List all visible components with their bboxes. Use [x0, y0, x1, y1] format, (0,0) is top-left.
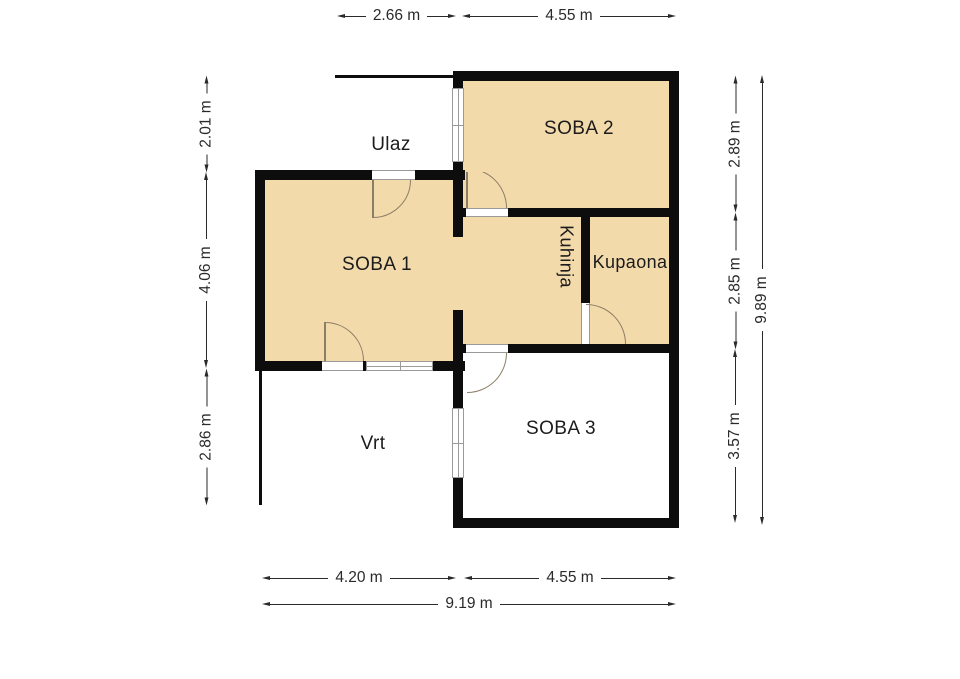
window-ulaz-soba2 — [452, 88, 464, 162]
dim-bottom-total: 9.19 m — [262, 596, 676, 612]
dim-top-1-label: 2.66 m — [366, 8, 427, 24]
line-vrt-left — [259, 371, 262, 505]
wall-right — [669, 71, 679, 528]
wall-soba1-left — [255, 170, 265, 371]
dim-right-2-label: 2.85 m — [728, 250, 744, 311]
door-arc-soba1-vrt — [325, 322, 364, 361]
area-label-ulaz: Ulaz — [331, 134, 451, 156]
room-label-soba-1: SOBA 1 — [307, 254, 447, 276]
room-label-soba-3: SOBA 3 — [491, 418, 631, 440]
wall-central-a — [453, 71, 463, 88]
dim-right-total: 9.89 m — [754, 75, 770, 525]
dim-left-2: 4.06 m — [198, 172, 214, 368]
dim-left-3: 2.86 m — [199, 369, 215, 506]
floor-plan: SOBA 1 SOBA 2 SOBA 3 Kuhinja Kupaona Ula… — [0, 0, 960, 679]
wall-kuhinja-bottom — [508, 344, 679, 353]
door-arc-kuhinja-soba3 — [467, 353, 507, 393]
dim-top-2: 4.55 m — [462, 8, 676, 24]
door-leaf-soba1-vrt — [324, 322, 326, 361]
window-soba1-vrt — [366, 361, 433, 371]
door-opening-ulaz-soba1 — [372, 170, 415, 180]
door-leaf-ulaz-soba1 — [372, 180, 374, 218]
door-arc-kupaona — [586, 304, 626, 344]
wall-central-c — [453, 310, 463, 408]
wall-soba1-top-left — [255, 170, 372, 180]
dim-top-2-label: 4.55 m — [538, 8, 599, 24]
area-label-vrt: Vrt — [313, 433, 433, 455]
wall-soba2-top — [453, 71, 679, 81]
door-opening-kuhinja-soba3 — [466, 344, 508, 353]
door-opening-soba2-kuhinja — [466, 208, 508, 217]
dim-bottom-2-label: 4.55 m — [539, 570, 600, 586]
dim-bottom-2: 4.55 m — [464, 570, 676, 586]
wall-central-d — [453, 478, 463, 528]
door-arc-ulaz-soba1 — [373, 180, 411, 218]
dim-right-1-label: 2.89 m — [728, 113, 744, 174]
dim-bottom-total-label: 9.19 m — [438, 596, 499, 612]
dim-bottom-1-label: 4.20 m — [328, 570, 389, 586]
dim-right-total-label: 9.89 m — [754, 269, 770, 330]
wall-soba1-bottom-left — [255, 361, 322, 371]
dim-top-1: 2.66 m — [337, 8, 456, 24]
wall-soba3-bottom — [453, 518, 679, 528]
line-ulaz-top — [335, 75, 453, 78]
dim-right-3: 3.57 m — [727, 349, 743, 523]
wall-central-b — [453, 162, 463, 237]
door-leaf-soba2 — [466, 172, 468, 208]
dim-bottom-1: 4.20 m — [262, 570, 456, 586]
dim-right-1: 2.89 m — [728, 76, 744, 213]
dim-left-1: 2.01 m — [199, 76, 215, 173]
dim-right-3-label: 3.57 m — [727, 405, 743, 466]
dim-left-1-label: 2.01 m — [199, 93, 215, 154]
door-arc-soba2 — [467, 172, 507, 208]
wall-soba2-bottom — [508, 208, 679, 217]
door-opening-soba1-vrt — [322, 361, 363, 371]
room-label-kupaona: Kupaona — [570, 252, 690, 273]
window-soba3-vrt — [452, 408, 464, 478]
dim-right-2: 2.85 m — [728, 213, 744, 350]
dim-left-3-label: 2.86 m — [199, 406, 215, 467]
dim-left-2-label: 4.06 m — [198, 239, 214, 300]
room-label-soba-2: SOBA 2 — [509, 118, 649, 140]
